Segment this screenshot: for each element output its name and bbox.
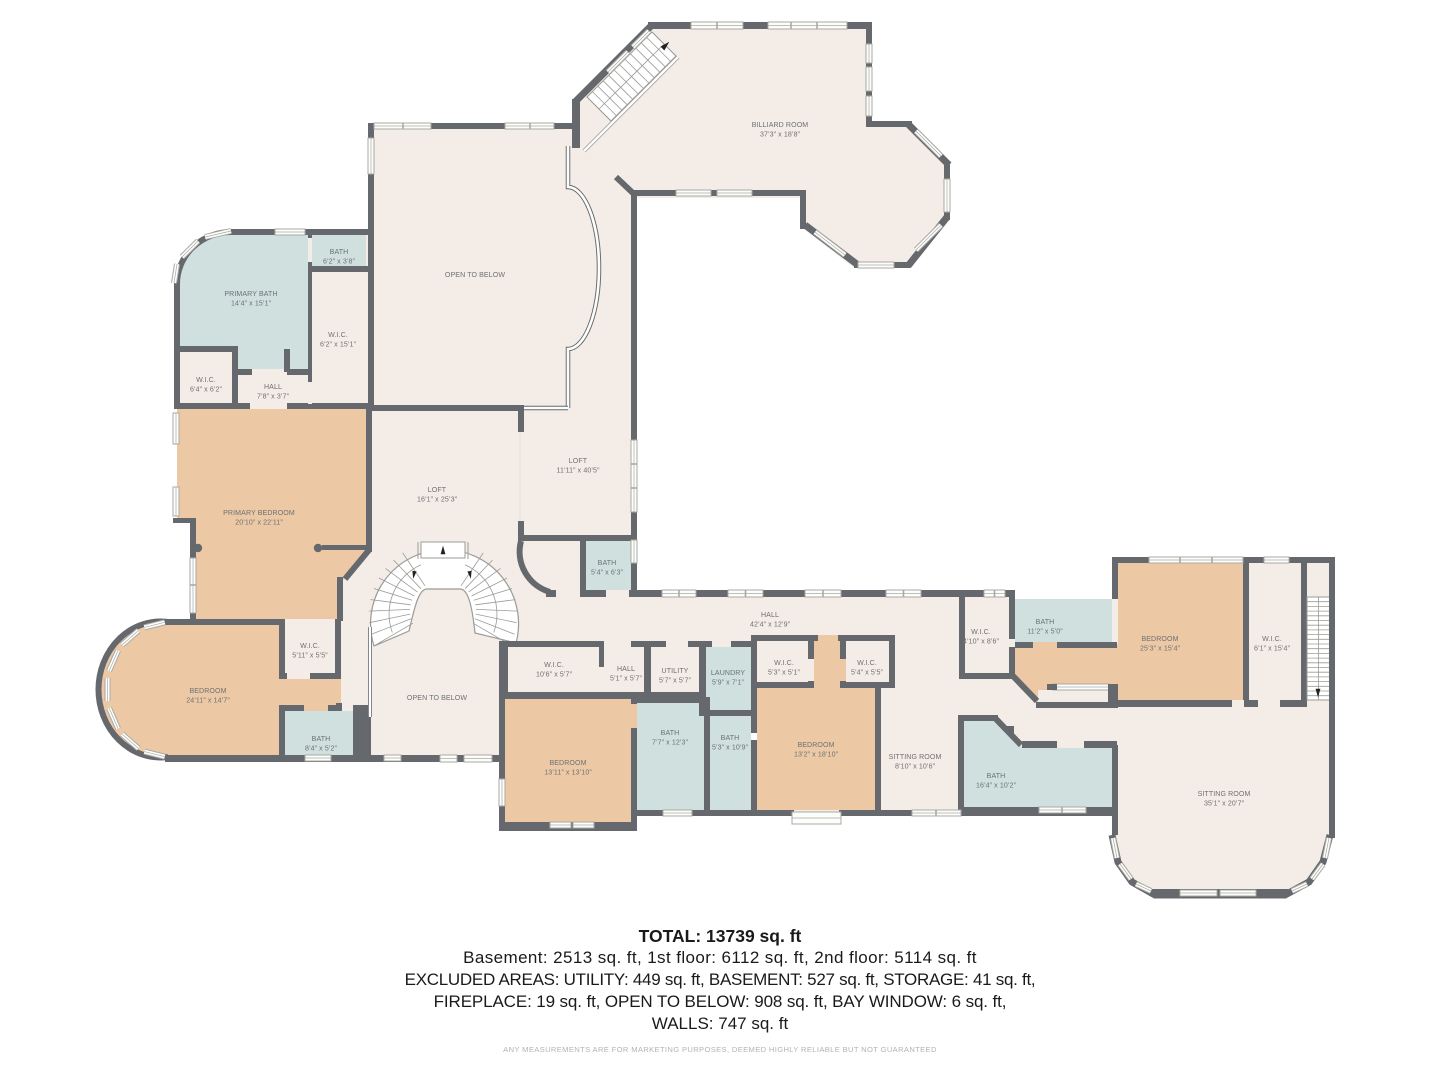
svg-text:PRIMARY BEDROOM: PRIMARY BEDROOM [223, 510, 295, 517]
svg-text:5’3” x 10’9”: 5’3” x 10’9” [712, 745, 749, 752]
svg-text:BATH: BATH [330, 249, 349, 256]
svg-text:24’11” x 14’7”: 24’11” x 14’7” [186, 698, 230, 705]
svg-text:SITTING ROOM: SITTING ROOM [1198, 791, 1251, 798]
svg-text:BATH: BATH [721, 735, 740, 742]
svg-text:8’4” x 5’2”: 8’4” x 5’2” [305, 746, 338, 753]
svg-text:4’10” x 8’6”: 4’10” x 8’6” [963, 639, 1000, 646]
svg-text:11’2” x 5’0”: 11’2” x 5’0” [1027, 629, 1063, 636]
svg-text:8’10” x 10’6”: 8’10” x 10’6” [895, 764, 936, 771]
svg-text:14’4” x 15’1”: 14’4” x 15’1” [231, 301, 272, 308]
svg-text:BEDROOM: BEDROOM [189, 688, 226, 695]
svg-text:5’1” x 5’7”: 5’1” x 5’7” [610, 676, 643, 683]
svg-text:42’4” x 12’9”: 42’4” x 12’9” [750, 622, 791, 629]
svg-text:UTILITY: UTILITY [662, 668, 689, 675]
svg-text:HALL: HALL [617, 666, 635, 673]
svg-text:20’10” x 22’11”: 20’10” x 22’11” [235, 520, 283, 527]
svg-text:BATH: BATH [312, 736, 331, 743]
svg-text:HALL: HALL [264, 384, 282, 391]
svg-text:37’3” x 18’8”: 37’3” x 18’8” [760, 132, 801, 139]
svg-text:W.I.C.: W.I.C. [300, 643, 320, 650]
svg-text:5’9” x 7’1”: 5’9” x 7’1” [712, 680, 745, 687]
svg-text:6’2” x 3’8”: 6’2” x 3’8” [323, 259, 356, 266]
svg-text:BEDROOM: BEDROOM [797, 742, 834, 749]
svg-text:5’4” x 6’3”: 5’4” x 6’3” [591, 570, 624, 577]
svg-text:6’1” x 15’4”: 6’1” x 15’4” [1254, 646, 1291, 653]
svg-text:7’7” x 12’3”: 7’7” x 12’3” [652, 740, 689, 747]
svg-text:35’1” x 20’7”: 35’1” x 20’7” [1204, 801, 1245, 808]
svg-text:LAUNDRY: LAUNDRY [711, 670, 745, 677]
svg-text:13’2” x 18’10”: 13’2” x 18’10” [794, 752, 839, 759]
svg-text:11’11” x 40’5”: 11’11” x 40’5” [556, 468, 600, 475]
svg-text:5’3” x 5’1”: 5’3” x 5’1” [768, 670, 801, 677]
svg-text:10’6” x 5’7”: 10’6” x 5’7” [536, 672, 573, 679]
svg-text:16’1” x 25’3”: 16’1” x 25’3” [417, 497, 458, 504]
svg-text:BATH: BATH [1036, 619, 1055, 626]
svg-text:LOFT: LOFT [569, 458, 588, 465]
svg-text:25’3” x 15’4”: 25’3” x 15’4” [1140, 646, 1181, 653]
svg-text:PRIMARY BATH: PRIMARY BATH [224, 291, 277, 298]
svg-text:BILLIARD ROOM: BILLIARD ROOM [752, 122, 809, 129]
svg-text:BATH: BATH [661, 730, 680, 737]
svg-text:OPEN TO BELOW: OPEN TO BELOW [445, 272, 505, 279]
svg-text:BATH: BATH [598, 560, 617, 567]
svg-text:W.I.C.: W.I.C. [544, 662, 564, 669]
svg-text:6’4” x 6’2”: 6’4” x 6’2” [190, 387, 223, 394]
svg-text:LOFT: LOFT [428, 487, 447, 494]
svg-text:OPEN TO BELOW: OPEN TO BELOW [407, 695, 467, 702]
svg-text:W.I.C.: W.I.C. [1262, 636, 1282, 643]
svg-text:W.I.C.: W.I.C. [196, 377, 216, 384]
svg-text:6’2” x 15’1”: 6’2” x 15’1” [320, 342, 357, 349]
svg-text:BEDROOM: BEDROOM [1141, 636, 1178, 643]
svg-text:5’7” x 5’7”: 5’7” x 5’7” [659, 678, 692, 685]
svg-text:W.I.C.: W.I.C. [774, 660, 794, 667]
svg-text:W.I.C.: W.I.C. [857, 660, 877, 667]
svg-text:SITTING ROOM: SITTING ROOM [889, 754, 942, 761]
svg-text:BEDROOM: BEDROOM [549, 760, 586, 767]
svg-text:13’11” x 13’10”: 13’11” x 13’10” [544, 770, 592, 777]
svg-text:16’4” x 10’2”: 16’4” x 10’2” [976, 783, 1017, 790]
svg-text:5’4” x 5’5”: 5’4” x 5’5” [851, 670, 884, 677]
svg-text:W.I.C.: W.I.C. [971, 629, 991, 636]
svg-text:W.I.C.: W.I.C. [328, 332, 348, 339]
svg-text:7’8” x 3’7”: 7’8” x 3’7” [257, 394, 290, 401]
svg-text:HALL: HALL [761, 612, 779, 619]
svg-text:BATH: BATH [987, 773, 1006, 780]
svg-text:5’11” x 5’5”: 5’11” x 5’5” [292, 653, 328, 660]
